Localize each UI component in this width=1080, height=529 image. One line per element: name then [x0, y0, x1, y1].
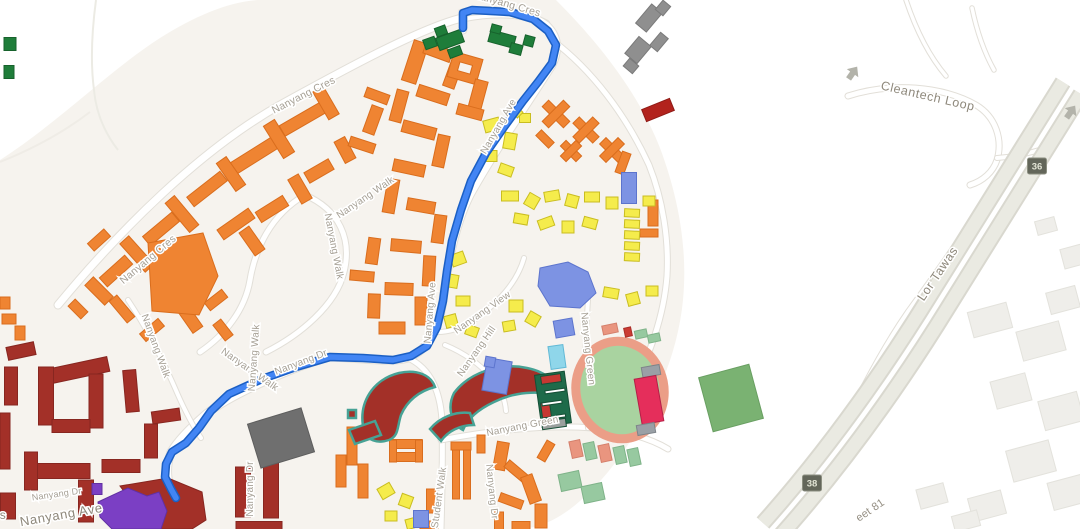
halls-orange	[385, 283, 413, 296]
buildings-blue	[414, 511, 429, 528]
buildings-yellow	[626, 292, 641, 307]
halls-orange	[336, 455, 346, 487]
buildings-yellow	[646, 286, 658, 296]
halls-orange	[390, 440, 397, 462]
buildings-yellow	[502, 191, 519, 201]
buildings-green	[4, 38, 16, 51]
buildings-yellow	[565, 194, 580, 209]
halls-orange	[477, 435, 485, 453]
buildings-darkred	[52, 420, 90, 433]
exit-shield: 36	[1028, 158, 1047, 174]
halls-orange	[422, 256, 436, 287]
exit-shield: 38	[803, 475, 822, 491]
buildings-blue	[622, 173, 637, 204]
halls-orange	[15, 326, 25, 340]
buildings-green	[4, 66, 14, 79]
map-viewport[interactable]: Nanyang CresNanyang CresNanyang CresNany…	[0, 0, 1080, 529]
pool-lightblue	[548, 345, 566, 370]
buildings-yellow	[544, 190, 561, 202]
courts-green	[558, 471, 582, 492]
buildings-darkred	[102, 460, 140, 473]
halls-orange	[640, 229, 658, 237]
halls-orange	[0, 297, 10, 309]
buildings-darkred	[25, 452, 38, 490]
road-label: s	[0, 508, 6, 522]
buildings-yellow	[502, 320, 516, 332]
exit-shield-number: 36	[1032, 162, 1043, 173]
buildings-yellow	[606, 197, 618, 209]
buildings-purple	[92, 484, 102, 495]
buildings-yellow	[624, 242, 639, 251]
halls-orange	[350, 270, 375, 282]
road-label: Nanyang Dr	[245, 461, 256, 517]
buildings-darkred	[5, 367, 18, 405]
halls-orange	[416, 440, 423, 462]
buildings-darkred	[32, 464, 90, 479]
buildings-yellow	[503, 132, 518, 150]
buildings-yellow	[509, 300, 523, 312]
buildings-darkred	[264, 462, 279, 518]
buildings-darkred	[0, 413, 10, 469]
buildings-yellow	[643, 196, 655, 206]
halls-orange	[512, 522, 530, 529]
halls-orange	[464, 445, 471, 499]
pool-lightblue	[548, 345, 566, 370]
courts-green	[581, 483, 605, 504]
buildings-yellow	[585, 192, 600, 202]
buildings-yellow	[624, 231, 639, 240]
exit-shield-number: 38	[807, 479, 818, 490]
buildings-yellow	[603, 287, 620, 299]
heritage-red-teal	[348, 410, 356, 418]
buildings-darkred	[39, 367, 54, 425]
buildings-yellow	[624, 209, 639, 218]
buildings-yellow	[624, 253, 639, 262]
buildings-green	[523, 35, 535, 47]
buildings-darkred	[89, 374, 103, 428]
map-canvas[interactable]: Nanyang CresNanyang CresNanyang CresNany…	[0, 0, 1080, 529]
buildings-darkred	[236, 522, 282, 529]
halls-orange	[379, 322, 405, 334]
halls-orange	[391, 239, 422, 254]
buildings-yellow	[385, 511, 397, 521]
halls-orange	[535, 504, 547, 528]
buildings-yellow	[624, 220, 639, 229]
halls-orange	[451, 442, 471, 450]
courts-salmon	[624, 327, 633, 337]
buildings-blue	[484, 356, 496, 368]
buildings-darkred	[145, 424, 158, 458]
buildings-blue	[553, 318, 575, 338]
halls-orange	[453, 445, 460, 499]
buildings-yellow	[562, 221, 574, 233]
halls-orange	[368, 294, 381, 318]
buildings-yellow	[513, 213, 529, 225]
buildings-yellow	[456, 296, 470, 306]
halls-orange	[2, 314, 16, 324]
halls-orange	[358, 464, 368, 498]
